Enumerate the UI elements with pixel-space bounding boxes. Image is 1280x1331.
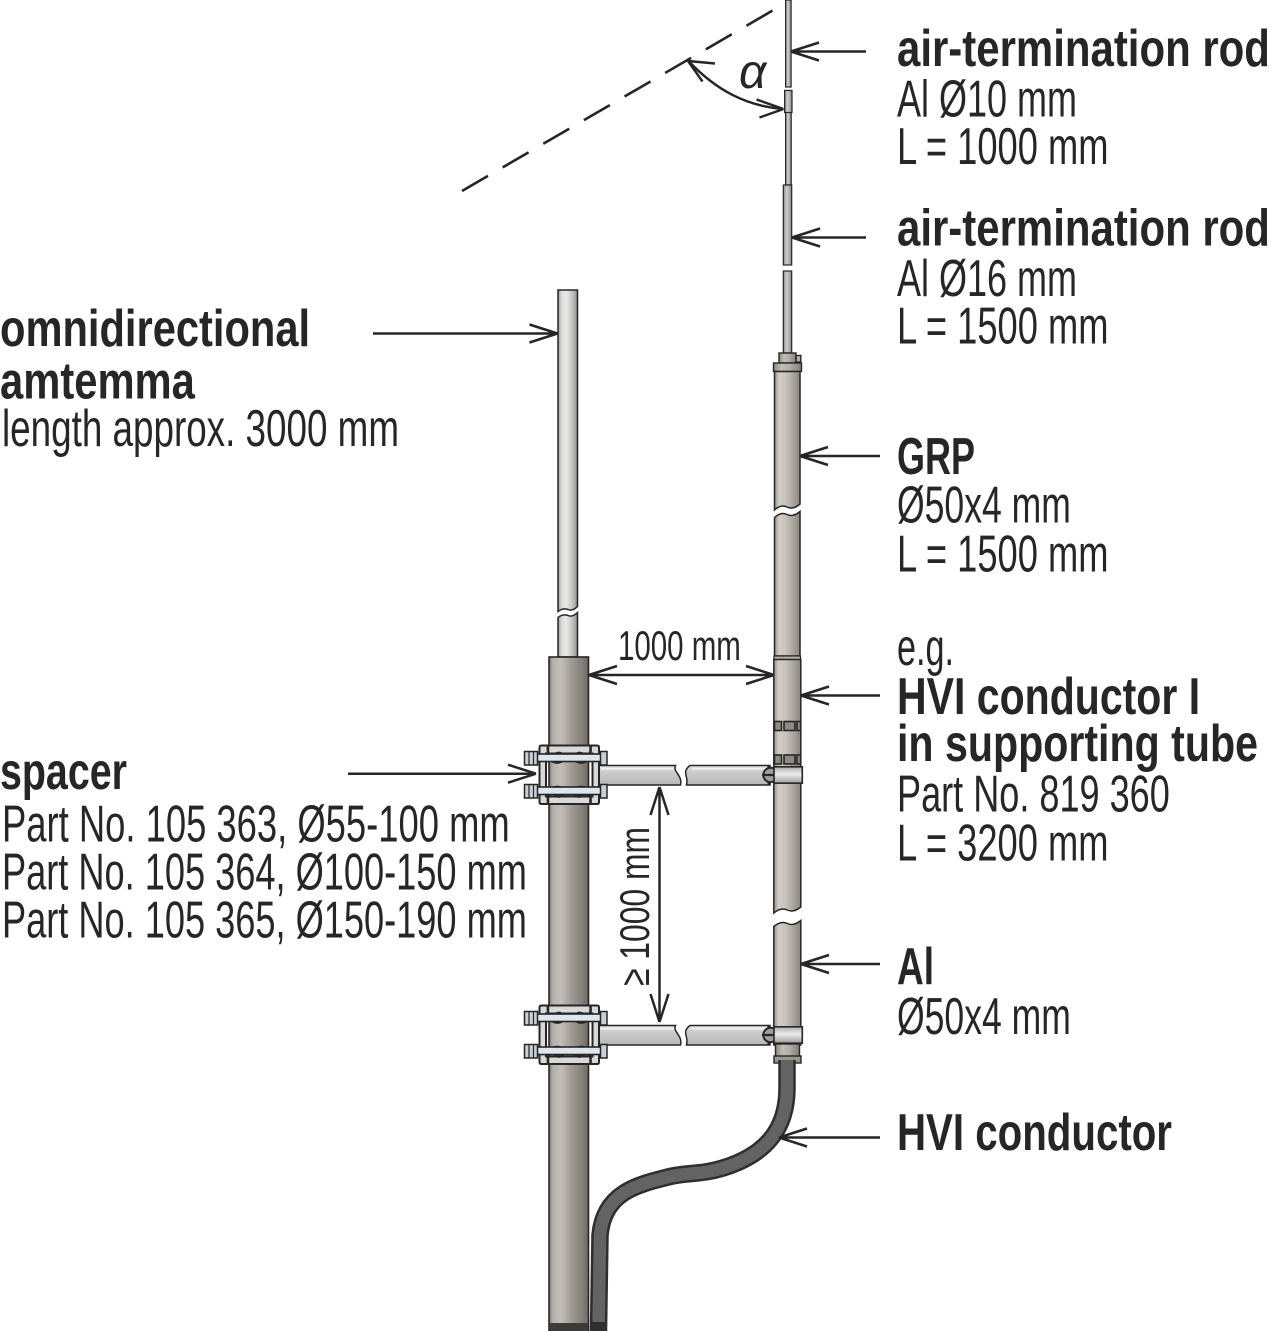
svg-text:α: α xyxy=(739,46,768,99)
svg-text:air-termination rod: air-termination rod xyxy=(897,199,1270,257)
svg-text:length approx. 3000 mm: length approx. 3000 mm xyxy=(2,399,399,458)
svg-text:Ø50x4 mm: Ø50x4 mm xyxy=(897,988,1071,1045)
svg-text:Part No. 105 365, Ø150-190 mm: Part No. 105 365, Ø150-190 mm xyxy=(2,891,527,949)
svg-text:air-termination rod: air-termination rod xyxy=(897,20,1270,78)
svg-text:≥ 1000 mm: ≥ 1000 mm xyxy=(611,827,658,986)
svg-text:1000 mm: 1000 mm xyxy=(618,622,741,669)
svg-text:Al: Al xyxy=(897,937,934,996)
svg-text:L = 3200 mm: L = 3200 mm xyxy=(897,813,1108,872)
svg-text:L = 1500 mm: L = 1500 mm xyxy=(897,524,1108,583)
svg-text:in supporting tube: in supporting tube xyxy=(897,714,1258,772)
svg-text:L = 1500 mm: L = 1500 mm xyxy=(897,296,1108,355)
svg-text:spacer: spacer xyxy=(0,742,127,801)
svg-text:omnidirectional: omnidirectional xyxy=(0,299,310,358)
svg-text:HVI conductor: HVI conductor xyxy=(897,1103,1172,1161)
svg-text:L = 1000 mm: L = 1000 mm xyxy=(897,116,1108,175)
